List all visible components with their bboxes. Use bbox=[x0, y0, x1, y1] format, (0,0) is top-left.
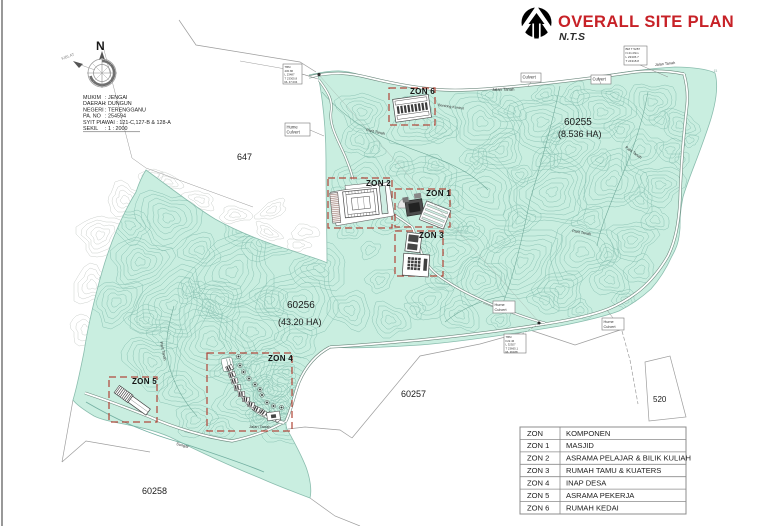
svg-text:520: 520 bbox=[653, 395, 667, 404]
svg-text:RUMAH TAMU & KUATERS: RUMAH TAMU & KUATERS bbox=[566, 466, 661, 475]
svg-text:: JENGAI: : JENGAI bbox=[105, 95, 127, 101]
svg-text:: DUNGUN: : DUNGUN bbox=[105, 101, 132, 107]
svg-text:RL 36188: RL 36188 bbox=[506, 350, 518, 354]
svg-text:Culvert: Culvert bbox=[604, 325, 617, 329]
svg-text:KOMPONEN: KOMPONEN bbox=[566, 429, 610, 438]
svg-text:: 1 : 2000: : 1 : 2000 bbox=[105, 126, 127, 132]
svg-text:ZON 6: ZON 6 bbox=[527, 503, 549, 512]
svg-text:OVERALL SITE PLAN: OVERALL SITE PLAN bbox=[558, 13, 734, 31]
svg-text:(8.536 HA): (8.536 HA) bbox=[558, 129, 602, 139]
svg-text:Culvert: Culvert bbox=[495, 308, 508, 312]
svg-text:Jalan Tanah: Jalan Tanah bbox=[249, 424, 271, 429]
svg-text:T 24318.8: T 24318.8 bbox=[626, 59, 640, 63]
svg-text:RL 47.004: RL 47.004 bbox=[285, 80, 298, 84]
svg-text:Hume: Hume bbox=[604, 320, 614, 324]
svg-text:ZON 4: ZON 4 bbox=[268, 354, 293, 363]
svg-text:Jalan Tanah: Jalan Tanah bbox=[492, 87, 515, 92]
svg-text:SEKIL: SEKIL bbox=[83, 126, 98, 132]
svg-text:Culvert: Culvert bbox=[523, 74, 537, 79]
svg-text:RUMAH KEDAI: RUMAH KEDAI bbox=[566, 503, 619, 512]
svg-text:ZON 1: ZON 1 bbox=[426, 189, 451, 198]
svg-text:Hume: Hume bbox=[495, 303, 505, 307]
svg-text:ASRAMA PELAJAR & BILIK KULIAH: ASRAMA PELAJAR & BILIK KULIAH bbox=[566, 454, 691, 463]
svg-text:SYIT PIAWAI : 121-C,127-B & 12: SYIT PIAWAI : 121-C,127-B & 128-A bbox=[83, 120, 171, 126]
svg-text:60257: 60257 bbox=[401, 389, 426, 399]
svg-text:MUKIM: MUKIM bbox=[83, 95, 101, 101]
svg-text:ZON 2: ZON 2 bbox=[366, 179, 391, 188]
svg-text:ZON 5: ZON 5 bbox=[132, 377, 157, 386]
svg-text:ZON 1: ZON 1 bbox=[527, 441, 549, 450]
svg-text:: TERENGGANU: : TERENGGANU bbox=[105, 107, 146, 113]
svg-text:DAERAH: DAERAH bbox=[83, 101, 106, 107]
svg-text:N: N bbox=[96, 39, 105, 53]
svg-text:N.T.S: N.T.S bbox=[559, 31, 585, 43]
svg-text:Culvert: Culvert bbox=[287, 130, 301, 135]
svg-text:60258: 60258 bbox=[142, 486, 167, 496]
svg-text:: 254594: : 254594 bbox=[105, 114, 126, 120]
svg-text:ZON 2: ZON 2 bbox=[527, 454, 549, 463]
svg-text:MASJID: MASJID bbox=[566, 441, 594, 450]
svg-text:ZON: ZON bbox=[527, 429, 543, 438]
svg-text:ZON 3: ZON 3 bbox=[527, 466, 549, 475]
svg-text:60255: 60255 bbox=[564, 117, 592, 128]
svg-text:ZON 3: ZON 3 bbox=[419, 231, 444, 240]
svg-text:ZON 5: ZON 5 bbox=[527, 491, 549, 500]
svg-text:ZON 6: ZON 6 bbox=[410, 87, 435, 96]
svg-text:ASRAMA PEKERJA: ASRAMA PEKERJA bbox=[566, 491, 635, 500]
svg-text:(43.20 HA): (43.20 HA) bbox=[278, 317, 322, 327]
svg-text:INAP DESA: INAP DESA bbox=[566, 479, 607, 488]
svg-text:ZON 4: ZON 4 bbox=[527, 479, 549, 488]
svg-text:60256: 60256 bbox=[287, 300, 315, 311]
svg-text:647: 647 bbox=[237, 152, 252, 162]
svg-text:NEGERI: NEGERI bbox=[83, 107, 104, 113]
svg-text:PA. NO: PA. NO bbox=[83, 114, 101, 120]
